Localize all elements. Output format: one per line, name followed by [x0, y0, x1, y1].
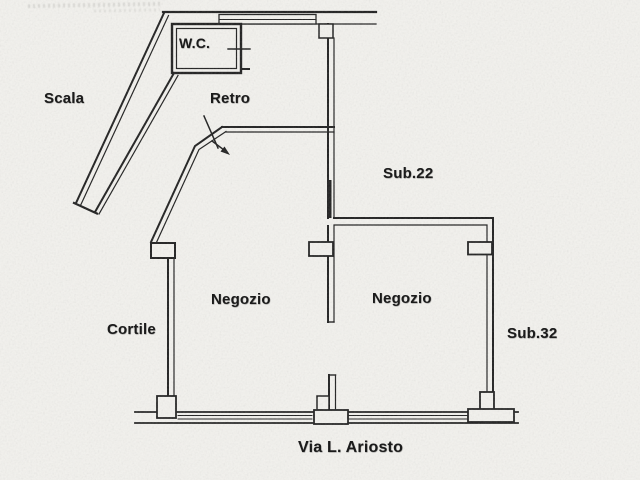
room-label-scala: Scala	[44, 90, 84, 107]
floor-plan-drawing	[0, 0, 640, 480]
right-negozio-walls	[334, 218, 494, 411]
retro-wall	[222, 127, 334, 132]
cortile-wall	[151, 243, 175, 397]
center-wall-upper	[319, 24, 334, 218]
pillar	[309, 242, 333, 256]
scala-walls	[74, 13, 178, 214]
wall-fill-segment	[327, 180, 332, 218]
room-label-negozio-left: Negozio	[211, 291, 271, 308]
negozio-diagonal-wall	[151, 127, 226, 244]
top-wall	[163, 12, 376, 24]
scala-wall-cap	[74, 203, 97, 214]
pillar	[157, 396, 176, 418]
unit-label-sub22: Sub.22	[383, 165, 433, 182]
entrance-arrow-icon	[204, 116, 230, 155]
room-label-negozio-right: Negozio	[372, 290, 432, 307]
room-label-retro: Retro	[210, 90, 250, 107]
pillar	[468, 409, 514, 422]
shop-window	[348, 416, 467, 420]
pillar	[151, 243, 175, 258]
unit-label-sub32: Sub.32	[507, 325, 557, 342]
pillar	[468, 242, 492, 255]
shop-window	[178, 416, 312, 420]
scanned-floor-plan: W.C. Scala Retro Sub.22 Negozio Negozio …	[0, 0, 640, 480]
pillar	[317, 396, 329, 411]
street-label: Via L. Ariosto	[298, 439, 403, 457]
center-wall-lower	[309, 226, 336, 411]
room-label-cortile: Cortile	[107, 321, 156, 338]
window-top	[219, 15, 316, 25]
room-label-wc: W.C.	[179, 35, 210, 51]
pillar	[314, 410, 348, 424]
wall-notch	[319, 24, 333, 38]
